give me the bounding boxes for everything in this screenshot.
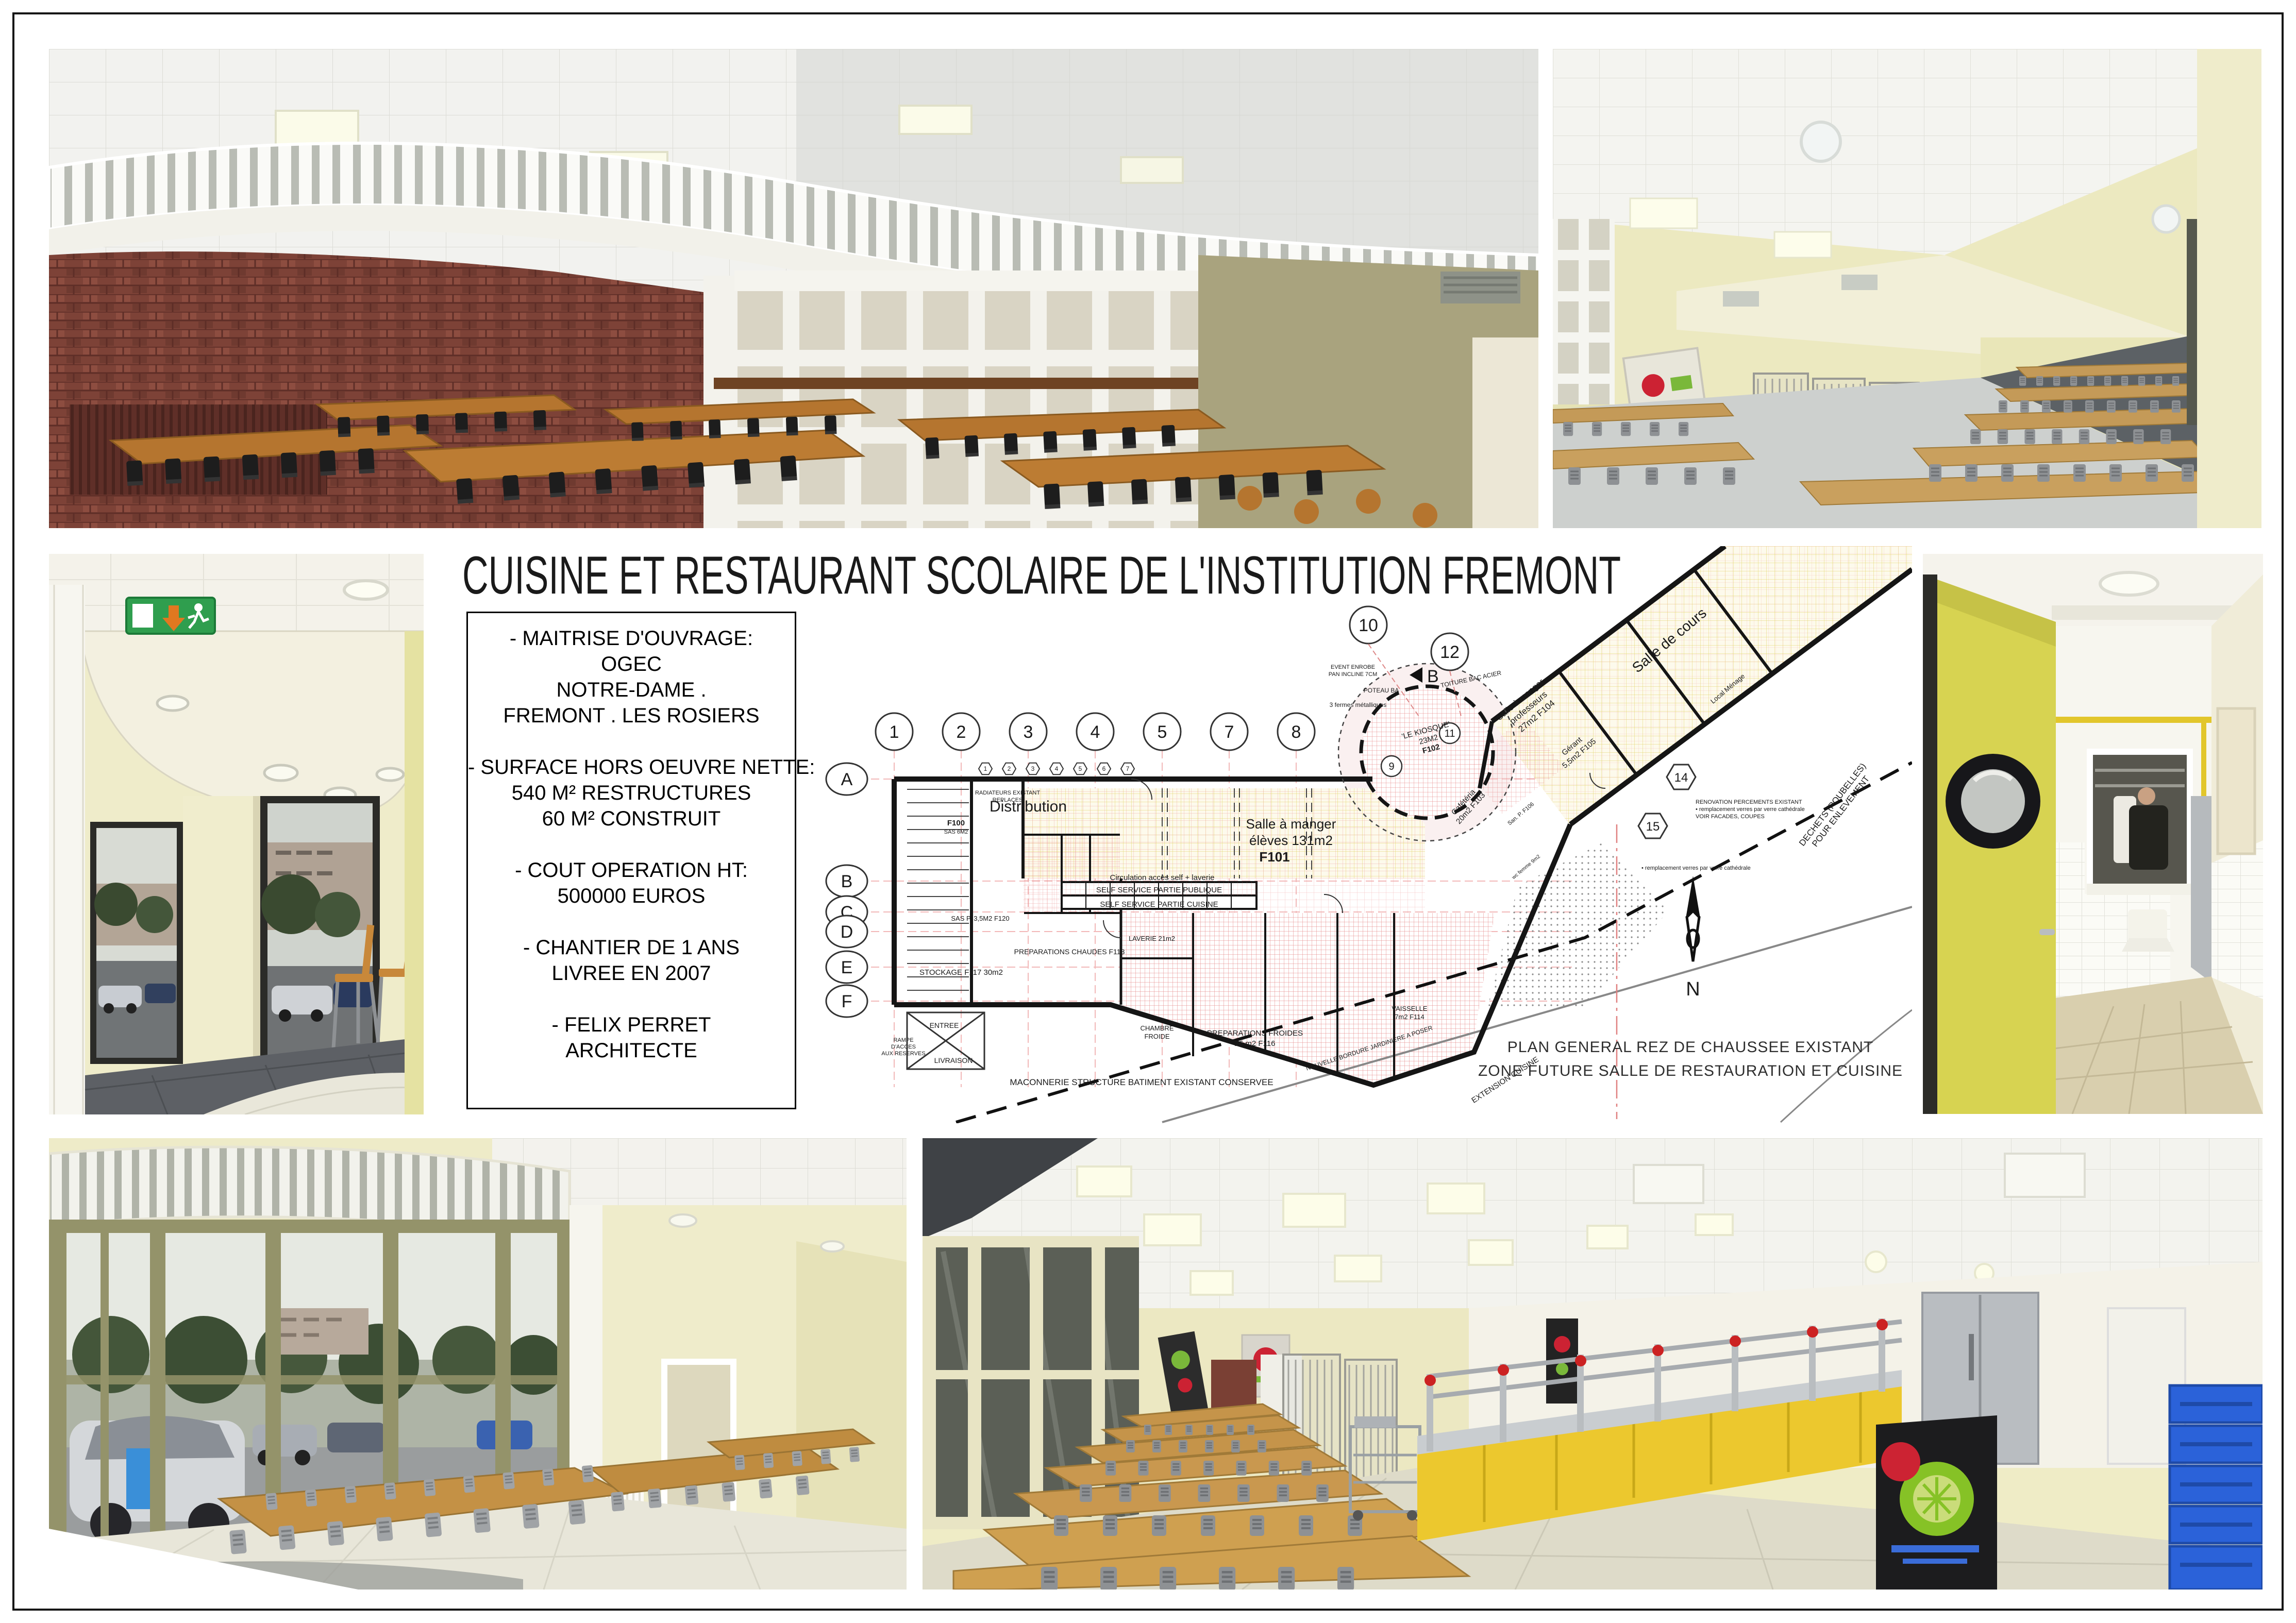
svg-text:10: 10: [1359, 616, 1378, 635]
grid-row-bubbles: A B C D E F: [826, 763, 867, 1017]
svg-text:CHAMBRE: CHAMBRE: [1140, 1024, 1174, 1032]
svg-text:4: 4: [1055, 765, 1059, 772]
svg-text:E: E: [841, 958, 853, 977]
clerestory: [1553, 219, 1615, 404]
svg-text:B: B: [841, 872, 853, 891]
right-pillar: [2197, 49, 2261, 528]
svg-text:ENTREE: ENTREE: [930, 1021, 959, 1029]
blue-crates: [2170, 1385, 2263, 1590]
photo-entrance-glazing: [49, 1138, 907, 1590]
svg-text:7m2 F114: 7m2 F114: [1395, 1013, 1424, 1021]
svg-text:2: 2: [957, 722, 966, 742]
info-schedule: - CHANTIER DE 1 ANS LIVREE EN 2007: [468, 935, 795, 986]
photo-entrance-hall: [49, 554, 424, 1114]
svg-text:1: 1: [890, 722, 899, 742]
svg-text:DECHETS (POUBELLES): DECHETS (POUBELLES): [1797, 762, 1868, 848]
svg-text:A: A: [841, 770, 853, 789]
svg-text:7: 7: [1225, 722, 1234, 742]
svg-text:Circulation accès self + laver: Circulation accès self + laverie: [1110, 873, 1214, 882]
yellow-wall-strip: [405, 631, 424, 1114]
grid-column-bubbles: 1 2 3 4 5 7 8: [876, 713, 1315, 750]
exit-sign-icon: [126, 598, 215, 634]
svg-text:CUISINE ET RESTAURANT SCOLAIRE: CUISINE ET RESTAURANT SCOLAIRE DE L'INST…: [462, 546, 1621, 605]
svg-text:PREPARATIONS FROIDES: PREPARATIONS FROIDES: [1207, 1029, 1303, 1038]
poster-column: [1876, 1415, 1997, 1590]
round-light: [344, 581, 388, 599]
svg-text:SELF SERVICE PARTIE PUBLIQUE: SELF SERVICE PARTIE PUBLIQUE: [1096, 886, 1222, 894]
svg-text:12: 12: [1440, 643, 1460, 662]
svg-text:5: 5: [1158, 722, 1167, 742]
svg-text:RENOVATION PERCEMENTS EXISTANT: RENOVATION PERCEMENTS EXISTANT: [1696, 799, 1802, 805]
svg-text:• remplacement verres par verr: • remplacement verres par verre cathédra…: [1641, 865, 1751, 871]
info-client: - MAITRISE D'OUVRAGE: OGEC NOTRE-DAME . …: [468, 625, 795, 729]
svg-text:FROIDE: FROIDE: [1144, 1033, 1169, 1040]
svg-text:PREPARATIONS CHAUDES F113: PREPARATIONS CHAUDES F113: [1014, 948, 1125, 956]
wall-shelf: [714, 378, 1224, 389]
photo-kitchen-corridor: [1923, 554, 2263, 1114]
svg-text:5: 5: [1079, 765, 1082, 772]
svg-text:LIVRAISON: LIVRAISON: [934, 1056, 973, 1064]
svg-text:REPLACES: REPLACES: [993, 797, 1023, 803]
svg-text:D: D: [841, 922, 853, 942]
window-markers: 1 2 3 4 5 6 7: [979, 763, 1134, 775]
svg-text:2: 2: [1008, 765, 1011, 772]
glass-wall-street-view: [260, 796, 380, 1077]
stainless-panel: [2191, 796, 2211, 983]
yellow-pipe: [2052, 717, 2213, 723]
svg-text:PLAN GENERAL REZ DE CHAUSSEE E: PLAN GENERAL REZ DE CHAUSSEE EXISTANT: [1507, 1039, 1874, 1056]
svg-text:élèves 131m2: élèves 131m2: [1249, 833, 1333, 848]
floor-plan: 1 2 3 4 5 7 8 A B C D E F 10 12: [801, 546, 1912, 1123]
svg-text:F: F: [842, 992, 852, 1011]
svg-text:14: 14: [1674, 771, 1688, 785]
svg-text:MACONNERIE STRUCTURE BATIMENT: MACONNERIE STRUCTURE BATIMENT EXISTANT C…: [1010, 1077, 1273, 1087]
page-title: CUISINE ET RESTAURANT SCOLAIRE DE L'INST…: [460, 546, 1626, 605]
svg-text:4: 4: [1091, 722, 1100, 742]
svg-text:POTEAU BA: POTEAU BA: [1364, 687, 1399, 694]
svg-text:RADIATEURS EXISTANT: RADIATEURS EXISTANT: [975, 790, 1040, 796]
svg-text:PAN INCLINE 7CM: PAN INCLINE 7CM: [1329, 671, 1378, 678]
svg-text:AUX RESERVES: AUX RESERVES: [881, 1051, 925, 1057]
svg-text:3: 3: [1024, 722, 1033, 742]
svg-text:ZONE FUTURE SALLE DE RESTAURAT: ZONE FUTURE SALLE DE RESTAURATION ET CUI…: [1478, 1062, 1903, 1079]
svg-text:F101: F101: [1259, 849, 1289, 865]
svg-text:VAISSELLE: VAISSELLE: [1392, 1005, 1427, 1012]
door-handle: [2039, 929, 2055, 935]
hex-markers: 14 15: [1638, 765, 1696, 838]
info-cost: - COUT OPERATION HT: 500000 EUROS: [468, 857, 795, 909]
svg-text:D'ACCES: D'ACCES: [891, 1044, 916, 1050]
svg-text:26 m2 F116: 26 m2 F116: [1235, 1039, 1276, 1048]
window-street-view: [90, 822, 183, 1064]
svg-text:LAVERIE 21m2: LAVERIE 21m2: [1129, 935, 1175, 942]
svg-text:11: 11: [1445, 728, 1455, 739]
svg-text:POUR ENLEVEMENT: POUR ENLEVEMENT: [1810, 774, 1871, 849]
svg-text:N: N: [1686, 978, 1700, 1000]
door: [2218, 708, 2255, 854]
svg-text:RAMPE: RAMPE: [893, 1037, 913, 1043]
info-architect: - FELIX PERRET ARCHITECTE: [468, 1012, 795, 1063]
porthole-door: [1923, 574, 2056, 1114]
presentation-board: 1 2 3 4 5 7 8 A B C D E F 10 12: [0, 0, 2296, 1623]
svg-text:F100: F100: [947, 819, 965, 827]
svg-text:15: 15: [1646, 820, 1660, 834]
svg-text:6: 6: [1102, 765, 1106, 772]
north-arrow: N: [1686, 876, 1700, 1000]
svg-text:STOCKAGE F117 30m2: STOCKAGE F117 30m2: [919, 968, 1003, 977]
svg-text:Salle à manger: Salle à manger: [1246, 816, 1336, 832]
svg-text:SAS P. 3,5M2 F120: SAS P. 3,5M2 F120: [951, 915, 1009, 922]
photo-dining-hall-brick: [49, 49, 1538, 528]
svg-text:• remplacement verres par verr: • remplacement verres par verre cathédra…: [1696, 806, 1805, 813]
svg-text:SELF SERVICE PARTIE CUISINE: SELF SERVICE PARTIE CUISINE: [1100, 900, 1218, 909]
svg-text:VOIR FACADES, COUPES: VOIR FACADES, COUPES: [1696, 814, 1765, 820]
photo-self-service-hall: [923, 1138, 2263, 1590]
svg-text:7: 7: [1126, 765, 1130, 772]
photo-dining-hall-racks: [1553, 49, 2261, 528]
svg-text:9: 9: [1388, 761, 1394, 772]
pillar: [183, 796, 260, 1095]
svg-text:EVENT ENROBE: EVENT ENROBE: [1331, 664, 1375, 670]
svg-text:3: 3: [1031, 765, 1035, 772]
svg-text:8: 8: [1292, 722, 1301, 742]
svg-text:B: B: [1427, 667, 1439, 686]
svg-text:SAS 6M2: SAS 6M2: [944, 829, 968, 835]
tile-wainscot: [2211, 840, 2263, 999]
round-light: [2100, 572, 2158, 595]
svg-text:1: 1: [984, 765, 987, 772]
project-info-panel: - MAITRISE D'OUVRAGE: OGEC NOTRE-DAME . …: [466, 612, 796, 1109]
svg-text:3 fermes métalliques: 3 fermes métalliques: [1330, 701, 1387, 708]
window-wall: [923, 1236, 1139, 1529]
info-surface: - SURFACE HORS OEUVRE NETTE: 540 M² REST…: [468, 754, 795, 832]
plan-caption: PLAN GENERAL REZ DE CHAUSSEE EXISTANT ZO…: [1478, 1039, 1903, 1079]
